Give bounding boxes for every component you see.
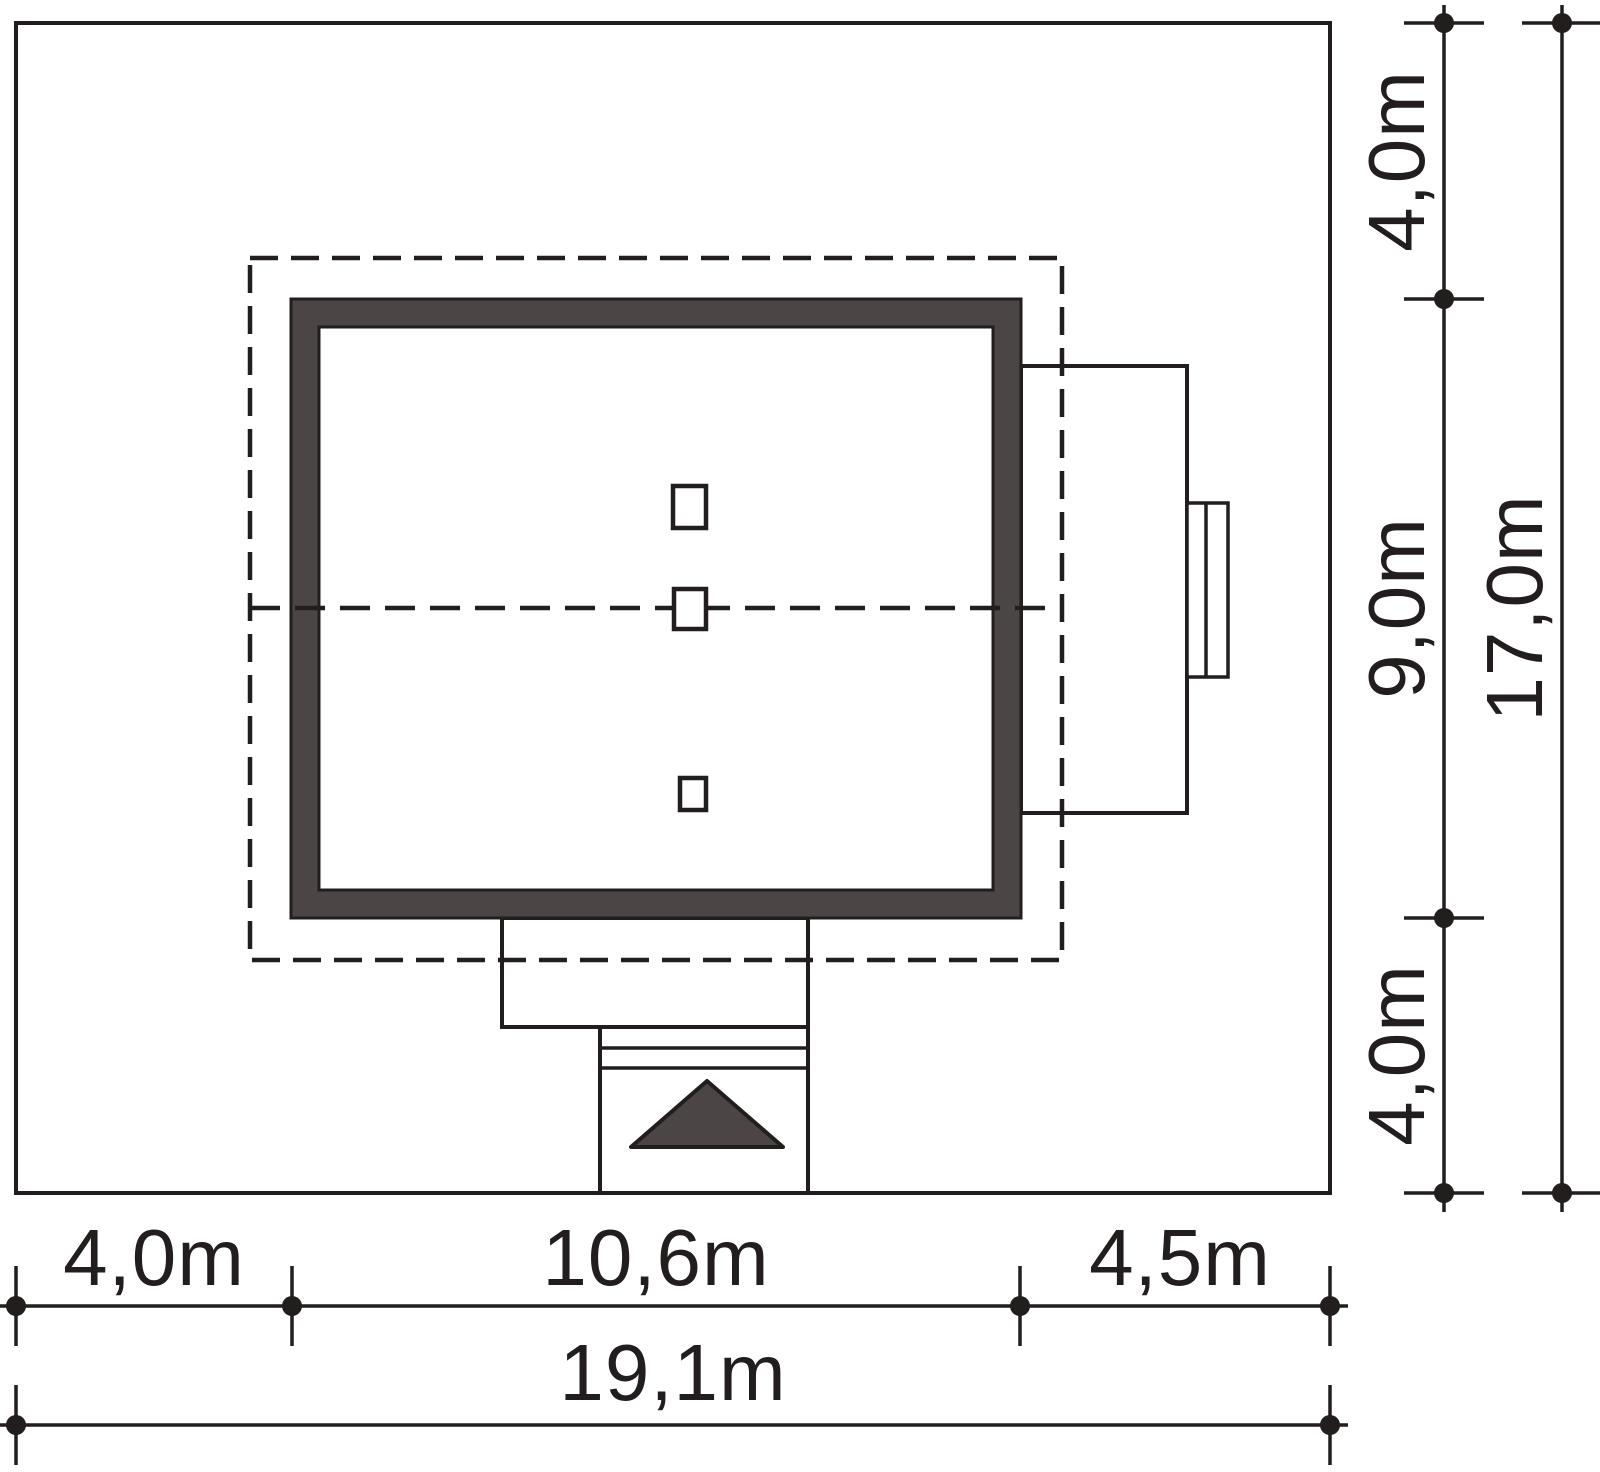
dim-dot xyxy=(1434,289,1454,309)
terrace-right xyxy=(1021,366,1187,813)
entrance-porch xyxy=(502,918,808,1027)
dim-label-right-top-setback: 4,0m xyxy=(1352,70,1441,252)
dim-label-bottom-right-setback: 4,5m xyxy=(1089,1213,1271,1302)
dim-dot xyxy=(1434,1183,1454,1203)
dim-label-house-depth: 9,0m xyxy=(1352,517,1441,699)
dim-dot xyxy=(1010,1296,1030,1316)
dim-dot xyxy=(1434,13,1454,33)
dim-dot xyxy=(6,1296,26,1316)
dim-label-bottom-left-setback: 4,0m xyxy=(63,1213,245,1302)
site-plan-drawing: 4,0m 10,6m 4,5m 19,1m 4,0m 9,0m 4,0m 17,… xyxy=(0,0,1600,1472)
dim-label-plot-depth-total: 17,0m xyxy=(1470,494,1559,721)
drawing-root: 4,0m 10,6m 4,5m 19,1m 4,0m 9,0m 4,0m 17,… xyxy=(0,5,1600,1465)
dim-dot xyxy=(1552,13,1572,33)
dim-dot xyxy=(1434,908,1454,928)
chimney-3 xyxy=(680,778,706,810)
site-plan-canvas: 4,0m 10,6m 4,5m 19,1m 4,0m 9,0m 4,0m 17,… xyxy=(0,0,1600,1472)
dim-dot xyxy=(1552,1183,1572,1203)
dim-label-right-bottom-setback: 4,0m xyxy=(1352,964,1441,1146)
dim-dot xyxy=(1320,1415,1340,1435)
chimney-1 xyxy=(673,486,706,528)
dim-label-house-width: 10,6m xyxy=(542,1213,769,1302)
chimney-2 xyxy=(674,589,706,629)
dim-dot xyxy=(1320,1296,1340,1316)
dim-dot xyxy=(6,1415,26,1435)
dim-dot xyxy=(282,1296,302,1316)
dim-label-plot-width-total: 19,1m xyxy=(559,1328,786,1417)
